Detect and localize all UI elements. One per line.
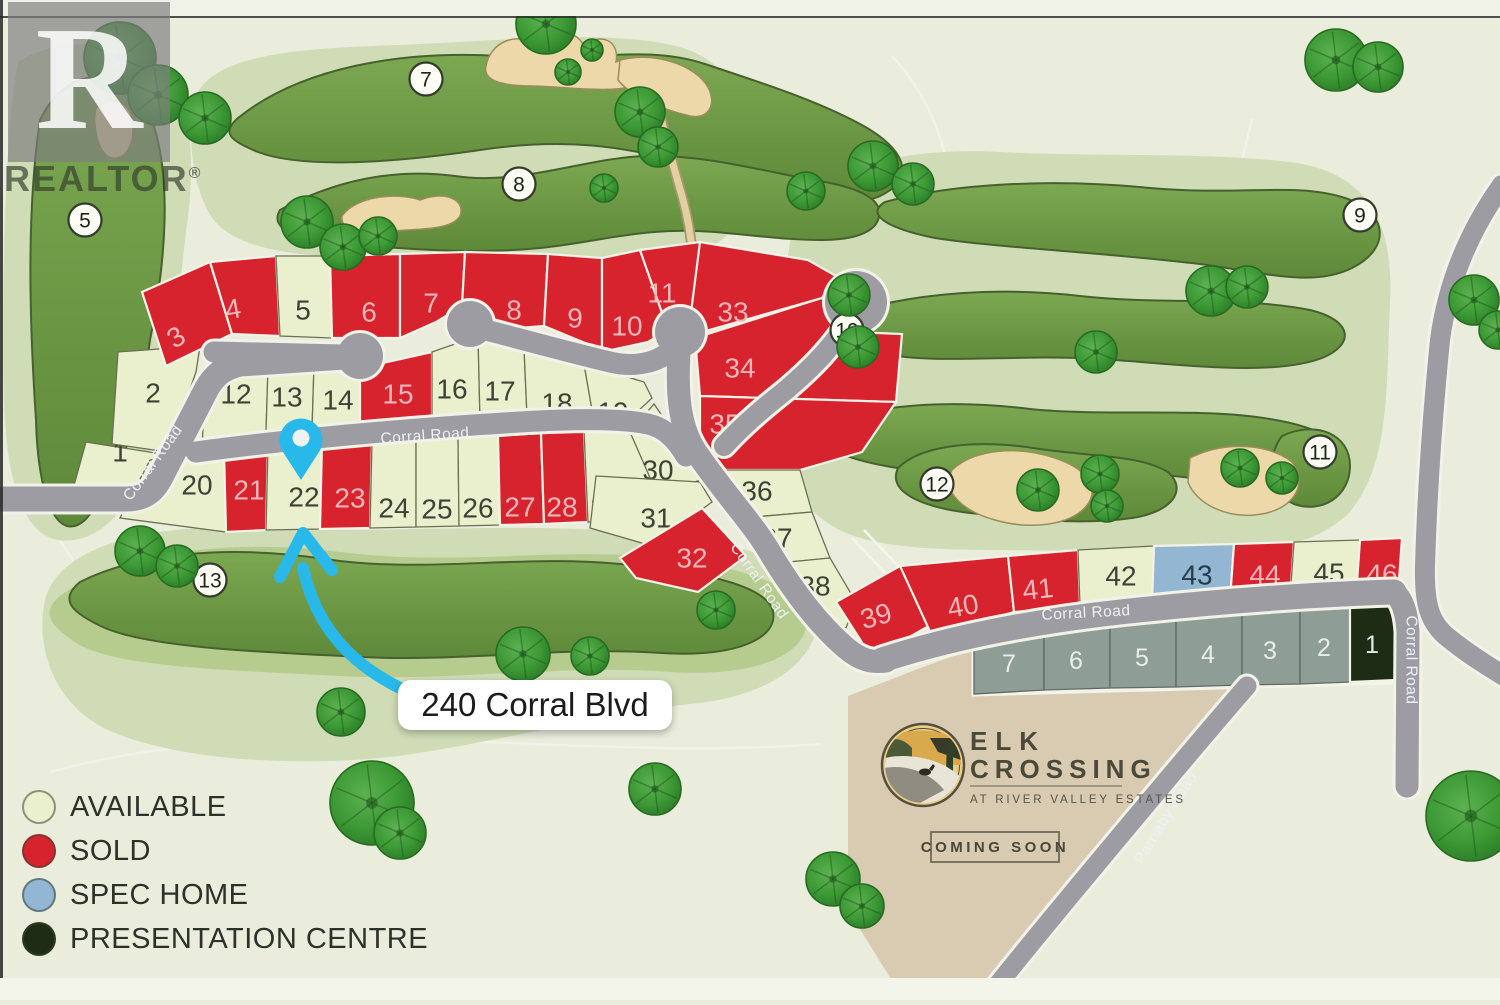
tree-icon — [581, 39, 603, 61]
legend-item-available: AVAILABLE — [22, 790, 428, 824]
tree-icon — [1091, 490, 1123, 522]
legend-item-sold: SOLD — [22, 834, 428, 868]
lot-3: 3 — [1242, 610, 1300, 685]
lot-number: 6 — [361, 297, 377, 328]
lot-number: 6 — [1069, 647, 1083, 675]
lot-number: 10 — [611, 311, 642, 342]
elk-title-line1: ELK — [970, 726, 1046, 756]
lot-number: 24 — [378, 493, 409, 524]
tree-icon — [555, 59, 581, 85]
lot-4: 4 — [1176, 615, 1242, 687]
legend-label-spec-home: SPEC HOME — [70, 879, 249, 912]
lot-number: 23 — [334, 483, 365, 514]
tree-icon — [1081, 455, 1119, 493]
tree-icon — [1353, 42, 1403, 92]
tree-icon — [697, 591, 735, 629]
tree-icon — [317, 688, 365, 736]
lot-number: 7 — [1002, 650, 1016, 678]
hole-number: 7 — [420, 69, 432, 92]
tree-icon — [638, 127, 678, 167]
address-text: 240 Corral Blvd — [421, 686, 648, 724]
lot-number: 5 — [295, 295, 311, 326]
hole-number: 9 — [1354, 205, 1366, 228]
legend-swatch-sold — [22, 834, 56, 868]
realtor-logo: R — [8, 2, 170, 162]
elk-title-line2: CROSSING — [970, 754, 1157, 784]
golf-hole-marker-7: 7 — [410, 63, 443, 96]
lot-number: 22 — [288, 482, 319, 513]
lot-24: 24 — [370, 440, 416, 528]
tree-icon — [848, 141, 898, 191]
lot-number: 43 — [1181, 560, 1212, 591]
legend-swatch-spec-home — [22, 878, 56, 912]
tree-icon — [840, 884, 884, 928]
lot-26: 26 — [458, 436, 500, 526]
lot-number: 21 — [233, 475, 264, 506]
road-label-4: Corral Road — [1403, 615, 1420, 704]
tree-icon — [1017, 469, 1059, 511]
lot-41: 41 — [1008, 550, 1080, 612]
tree-icon — [359, 217, 397, 255]
hole-number: 12 — [925, 474, 948, 497]
lot-number: 17 — [484, 376, 515, 407]
legend: AVAILABLESOLDSPEC HOMEPRESENTATION CENTR… — [22, 790, 428, 966]
legend-label-presentation-centre: PRESENTATION CENTRE — [70, 923, 428, 956]
top-band — [0, 0, 1500, 16]
tree-icon — [1226, 266, 1268, 308]
tree-icon — [828, 274, 870, 316]
golf-hole-marker-12: 12 — [921, 468, 954, 501]
lot-number: 42 — [1105, 561, 1136, 592]
lot-number: 1 — [1365, 631, 1379, 659]
lot-number: 5 — [1135, 644, 1149, 672]
lot-number: 20 — [181, 470, 212, 501]
lot-number: 9 — [567, 303, 583, 334]
legend-label-sold: SOLD — [70, 835, 151, 868]
legend-label-available: AVAILABLE — [70, 791, 227, 824]
hole-number: 11 — [1309, 442, 1331, 465]
lot-27: 27 — [498, 433, 544, 525]
lot-number: 8 — [506, 295, 522, 326]
tree-icon — [571, 637, 609, 675]
lot-number: 15 — [382, 379, 413, 410]
tree-icon — [496, 627, 550, 681]
tree-icon — [787, 172, 825, 210]
golf-hole-marker-11: 11 — [1304, 436, 1337, 469]
lot-number: 27 — [504, 492, 535, 523]
legend-swatch-presentation-centre — [22, 922, 56, 956]
golf-hole-marker-8: 8 — [503, 168, 536, 201]
lot-number: 11 — [647, 278, 676, 309]
lot-number: 7 — [423, 288, 439, 319]
lot-23: 23 — [320, 442, 372, 529]
lot-2: 2 — [1300, 606, 1350, 684]
lot-number: 41 — [1021, 572, 1055, 606]
realtor-logo-r: R — [36, 5, 143, 153]
address-label: 240 Corral Blvd — [398, 680, 672, 730]
lot-number: 40 — [945, 588, 981, 624]
lot-1: 1 — [1350, 600, 1396, 682]
lot-5: 5 — [1110, 621, 1176, 688]
tree-icon — [629, 763, 681, 815]
tree-icon — [837, 326, 879, 368]
lot-number: 3 — [1263, 637, 1277, 665]
lot-number: 25 — [421, 494, 452, 525]
elk-subtitle: AT RIVER VALLEY ESTATES — [970, 794, 1186, 806]
realtor-wordmark: REALTOR® — [4, 158, 202, 200]
tree-icon — [1075, 331, 1117, 373]
left-border-line — [0, 0, 3, 1000]
tree-icon — [179, 92, 231, 144]
lot-number: 16 — [436, 374, 467, 405]
lot-number: 14 — [322, 385, 353, 416]
golf-hole-marker-5: 5 — [69, 204, 102, 237]
lot-number: 28 — [546, 492, 577, 523]
legend-swatch-available — [22, 790, 56, 824]
coming-soon-label: COMING SOON — [921, 839, 1070, 856]
lot-number: 26 — [462, 493, 493, 524]
site-plan-image: 1234567891011121314151617181920212223242… — [0, 0, 1500, 1000]
tree-icon — [156, 545, 198, 587]
legend-item-spec-home: SPEC HOME — [22, 878, 428, 912]
registered-mark: ® — [189, 165, 203, 182]
lot-28: 28 — [541, 430, 588, 524]
lot-number: 34 — [724, 353, 755, 384]
tree-icon — [892, 163, 934, 205]
lot-number: 32 — [676, 543, 707, 574]
tree-icon — [1221, 449, 1259, 487]
lot-6: 6 — [1044, 628, 1110, 690]
bottom-band — [0, 978, 1500, 1000]
elk-crossing-emblem — [882, 724, 964, 806]
legend-item-presentation-centre: PRESENTATION CENTRE — [22, 922, 428, 956]
hole-number: 8 — [513, 174, 525, 197]
lot-number: 2 — [145, 378, 161, 409]
hole-number: 5 — [79, 210, 91, 233]
tree-icon — [1266, 462, 1298, 494]
lot-5: 5 — [276, 256, 332, 338]
lot-number: 2 — [1317, 634, 1331, 662]
golf-hole-marker-9: 9 — [1344, 199, 1377, 232]
tree-icon — [590, 174, 618, 202]
lot-number: 13 — [271, 382, 302, 413]
hole-number: 13 — [198, 570, 221, 593]
top-border-line — [0, 16, 1500, 18]
lot-number: 4 — [1201, 641, 1215, 669]
lot-25: 25 — [416, 438, 459, 527]
